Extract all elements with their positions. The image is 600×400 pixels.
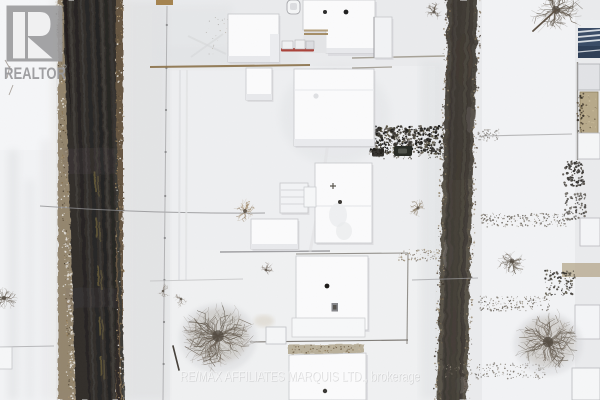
svg-text:RE/MAX AFFILIATES MARQUIS LTD.: RE/MAX AFFILIATES MARQUIS LTD., brokerag… (180, 369, 420, 384)
svg-text:REALTOR: REALTOR (4, 64, 66, 83)
